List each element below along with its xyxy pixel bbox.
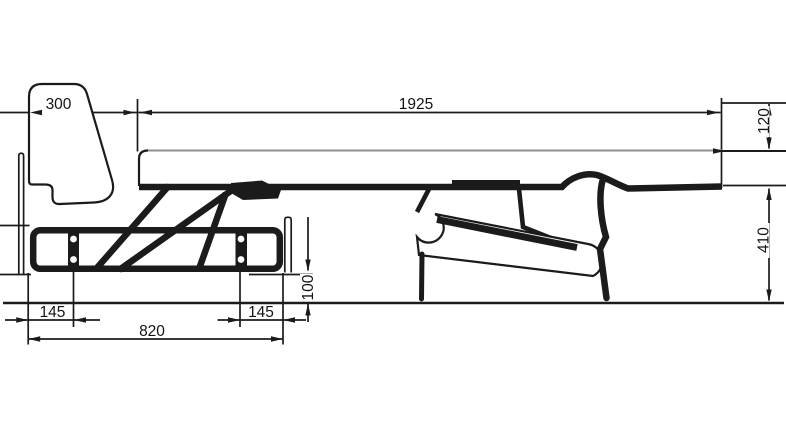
bolt-hole bbox=[238, 256, 245, 263]
arrow-mattress-top-right bbox=[713, 148, 725, 153]
arrow-1925-right bbox=[707, 110, 719, 115]
label-base-inset-left: 145 bbox=[40, 304, 66, 321]
mounting-bracket-right bbox=[236, 228, 248, 271]
arrow-145l-right bbox=[74, 317, 86, 322]
arrow-145r-left bbox=[228, 317, 240, 322]
arrow-410-top bbox=[766, 188, 771, 200]
label-mattress-thickness: 120 bbox=[756, 108, 773, 134]
arrow-145r-right bbox=[283, 317, 295, 322]
arrow-145l-left bbox=[16, 317, 28, 322]
arrow-820-left bbox=[28, 336, 40, 342]
mattress-left-cap bbox=[139, 151, 148, 187]
bolt-hole bbox=[70, 236, 77, 243]
arrow-120-bottom bbox=[766, 138, 771, 150]
mattress-bottom-rail bbox=[139, 174, 722, 188]
arrow-820-right bbox=[271, 336, 283, 342]
arrow-1925-left bbox=[140, 110, 152, 115]
label-base-length: 820 bbox=[139, 323, 165, 340]
technical-drawing-canvas: 300 1925 120 410 100 145 145 820 bbox=[0, 0, 786, 428]
dimension-arrowheads bbox=[16, 104, 772, 342]
arrow-300-right bbox=[124, 110, 136, 115]
seat-front-leg bbox=[422, 254, 423, 299]
seat-link-front bbox=[417, 189, 429, 212]
dimension-construction-lines bbox=[0, 98, 786, 345]
arrow-100-bottom bbox=[305, 304, 310, 316]
label-sleeping-length: 1925 bbox=[399, 96, 433, 113]
label-bed-height: 410 bbox=[756, 227, 773, 253]
bolt-hole bbox=[70, 256, 77, 263]
mounting-bracket-left bbox=[68, 228, 79, 271]
end-plate bbox=[285, 217, 291, 272]
label-base-clearance: 100 bbox=[300, 274, 317, 300]
sofa-bed-dimension-drawing: 300 1925 120 410 100 145 145 820 bbox=[0, 0, 786, 428]
label-base-inset-right: 145 bbox=[248, 304, 274, 321]
seat-rear-leg bbox=[600, 179, 607, 298]
arrow-100-top bbox=[305, 260, 310, 272]
bolt-hole bbox=[238, 236, 245, 243]
sofa-bed-side-view bbox=[19, 84, 722, 299]
arrow-410-bottom bbox=[766, 290, 771, 302]
back-panel bbox=[19, 153, 24, 275]
label-backrest-depth: 300 bbox=[46, 96, 72, 113]
